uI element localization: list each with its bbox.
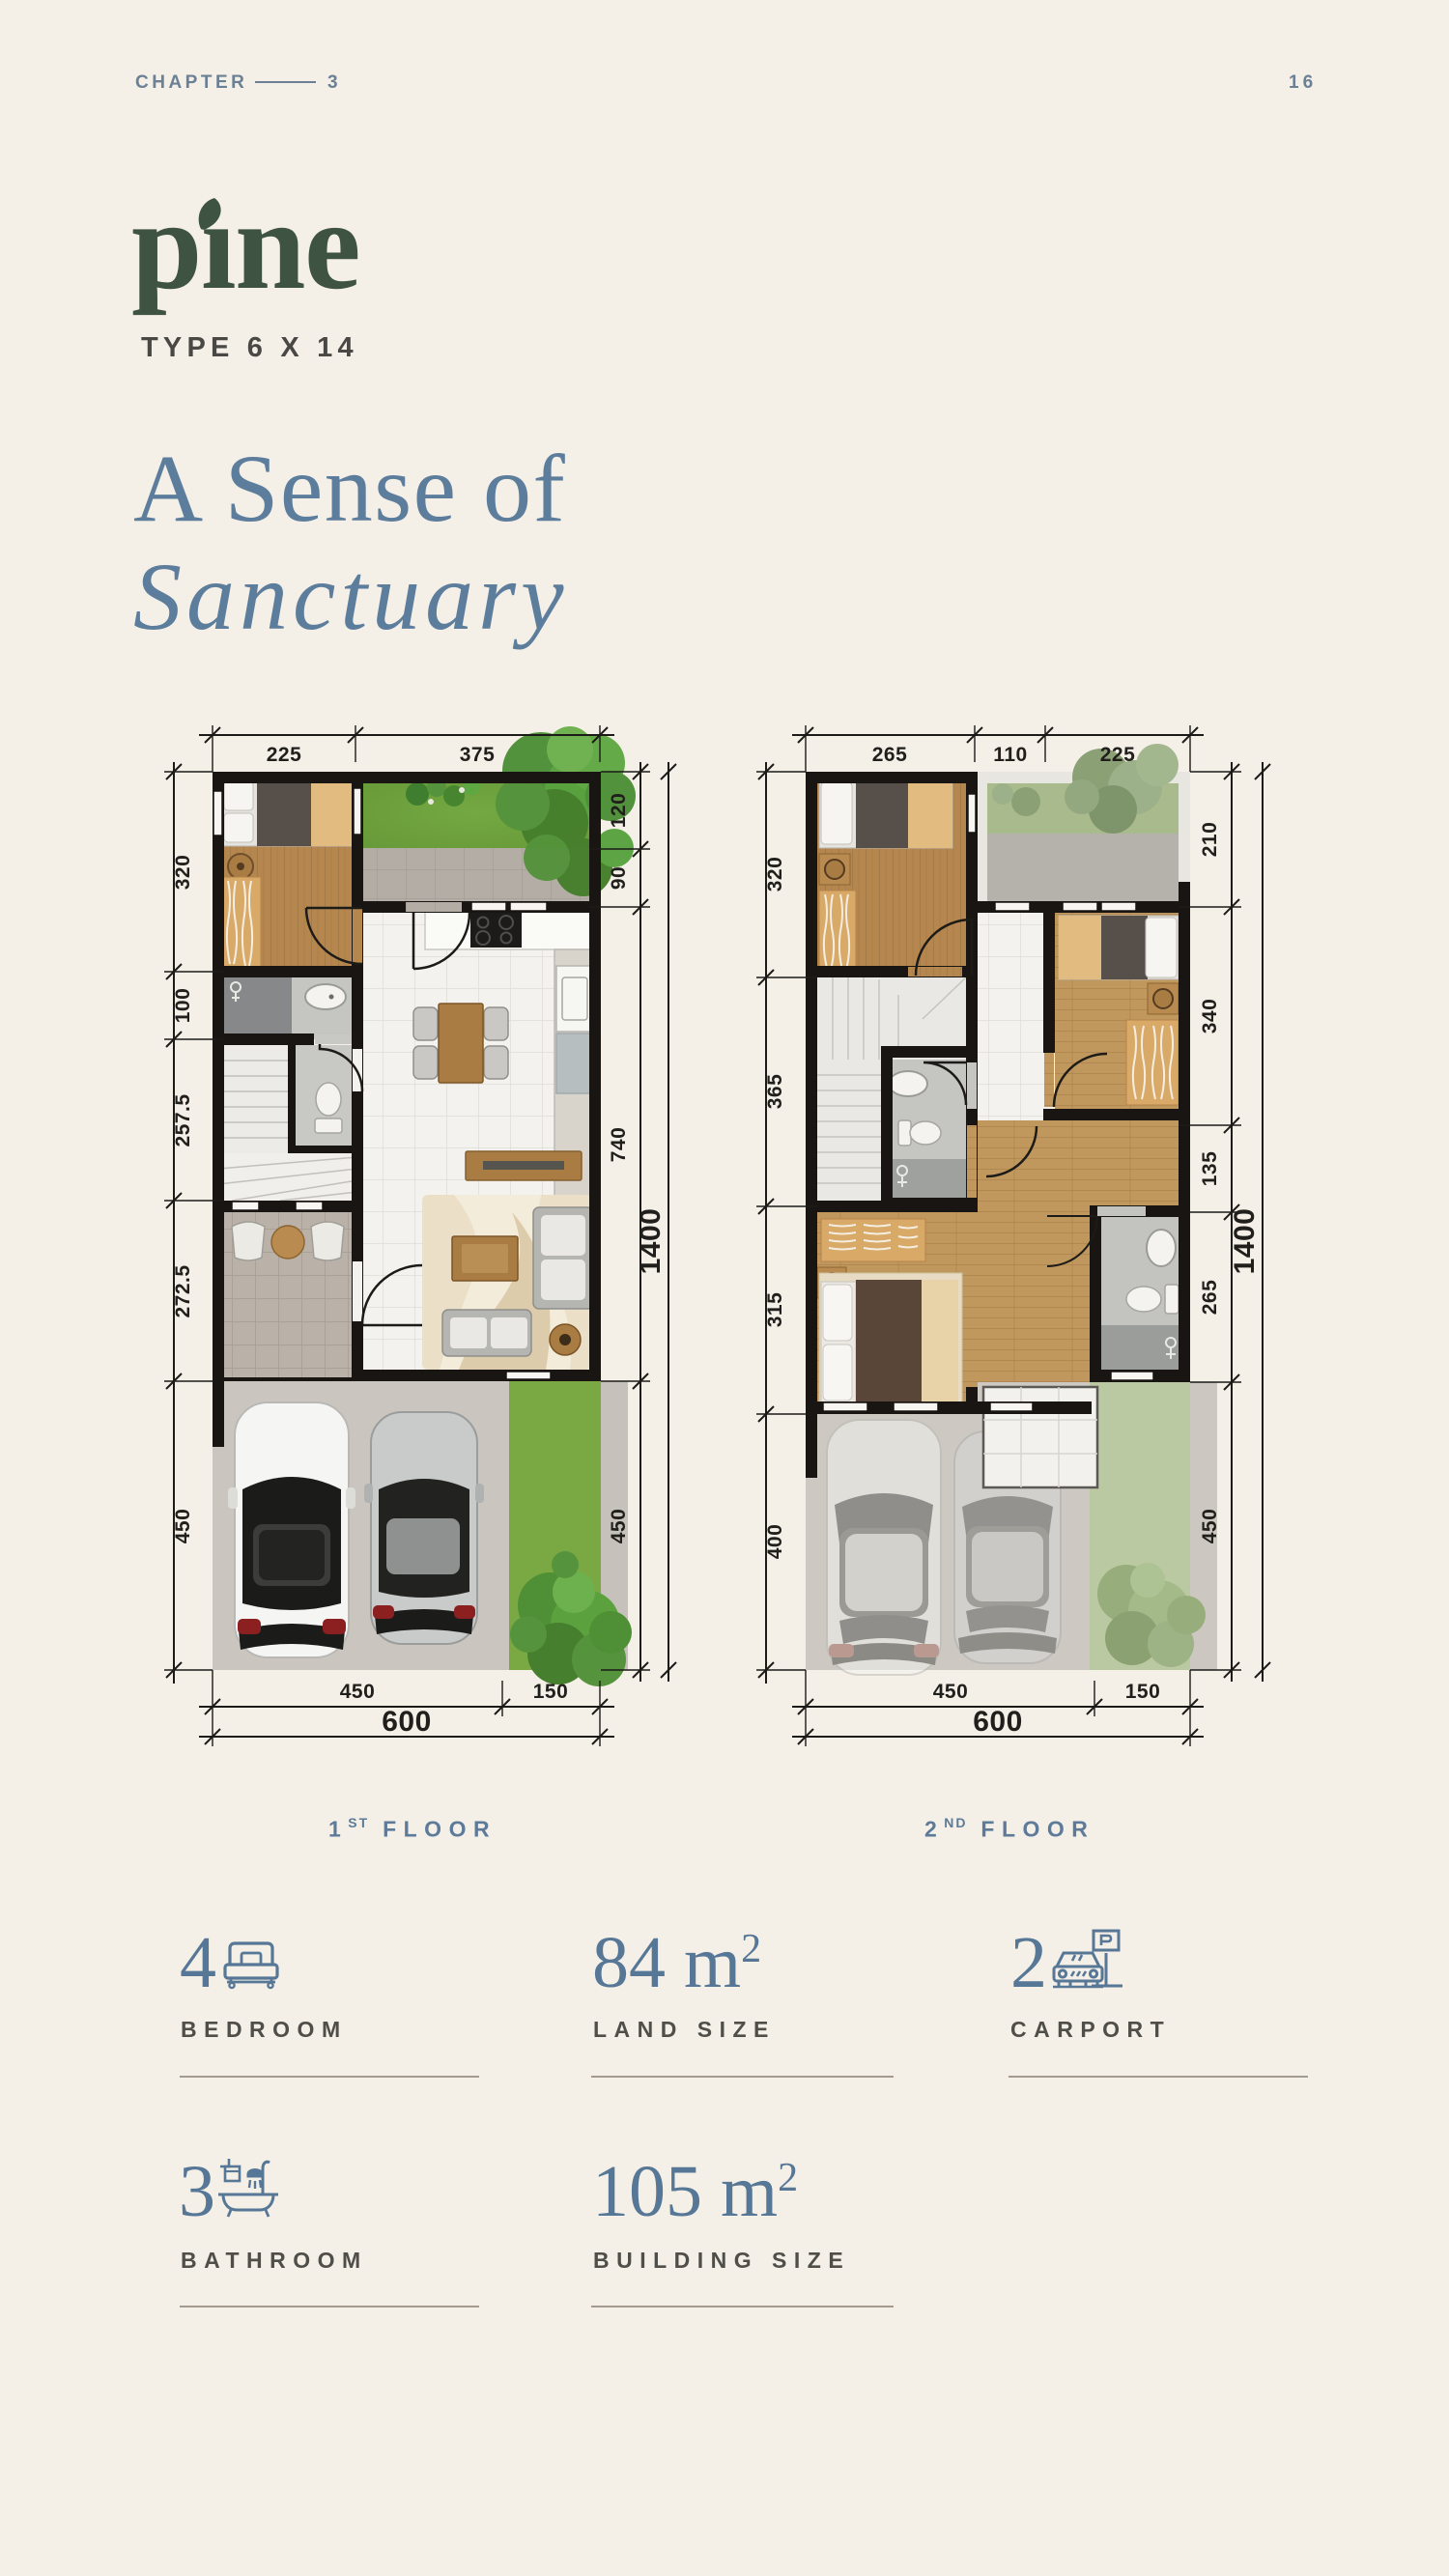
svg-text:315: 315 xyxy=(764,1292,786,1328)
svg-text:1400: 1400 xyxy=(635,1208,667,1275)
svg-text:90: 90 xyxy=(608,866,630,890)
svg-text:265: 265 xyxy=(872,744,908,766)
svg-text:320: 320 xyxy=(764,857,786,892)
svg-text:1400: 1400 xyxy=(1229,1208,1261,1275)
svg-text:265: 265 xyxy=(1199,1280,1221,1316)
svg-text:365: 365 xyxy=(764,1074,786,1110)
svg-text:450: 450 xyxy=(933,1681,969,1703)
svg-text:450: 450 xyxy=(1199,1509,1221,1544)
svg-text:320: 320 xyxy=(172,855,194,891)
svg-text:150: 150 xyxy=(1125,1681,1161,1703)
svg-text:340: 340 xyxy=(1199,999,1221,1034)
svg-text:740: 740 xyxy=(608,1127,630,1163)
svg-text:600: 600 xyxy=(382,1706,432,1738)
svg-text:100: 100 xyxy=(172,988,194,1024)
svg-text:450: 450 xyxy=(172,1509,194,1544)
svg-text:210: 210 xyxy=(1199,822,1221,858)
svg-text:375: 375 xyxy=(460,744,496,766)
svg-text:135: 135 xyxy=(1199,1151,1221,1187)
svg-text:225: 225 xyxy=(267,744,302,766)
svg-text:120: 120 xyxy=(608,793,630,829)
svg-text:450: 450 xyxy=(608,1509,630,1544)
svg-text:272.5: 272.5 xyxy=(172,1264,194,1317)
svg-text:150: 150 xyxy=(533,1681,569,1703)
svg-text:110: 110 xyxy=(993,744,1027,766)
svg-text:257.5: 257.5 xyxy=(172,1093,194,1146)
svg-text:225: 225 xyxy=(1100,744,1136,766)
svg-text:400: 400 xyxy=(764,1524,786,1560)
svg-text:450: 450 xyxy=(340,1681,376,1703)
svg-text:600: 600 xyxy=(973,1706,1023,1738)
